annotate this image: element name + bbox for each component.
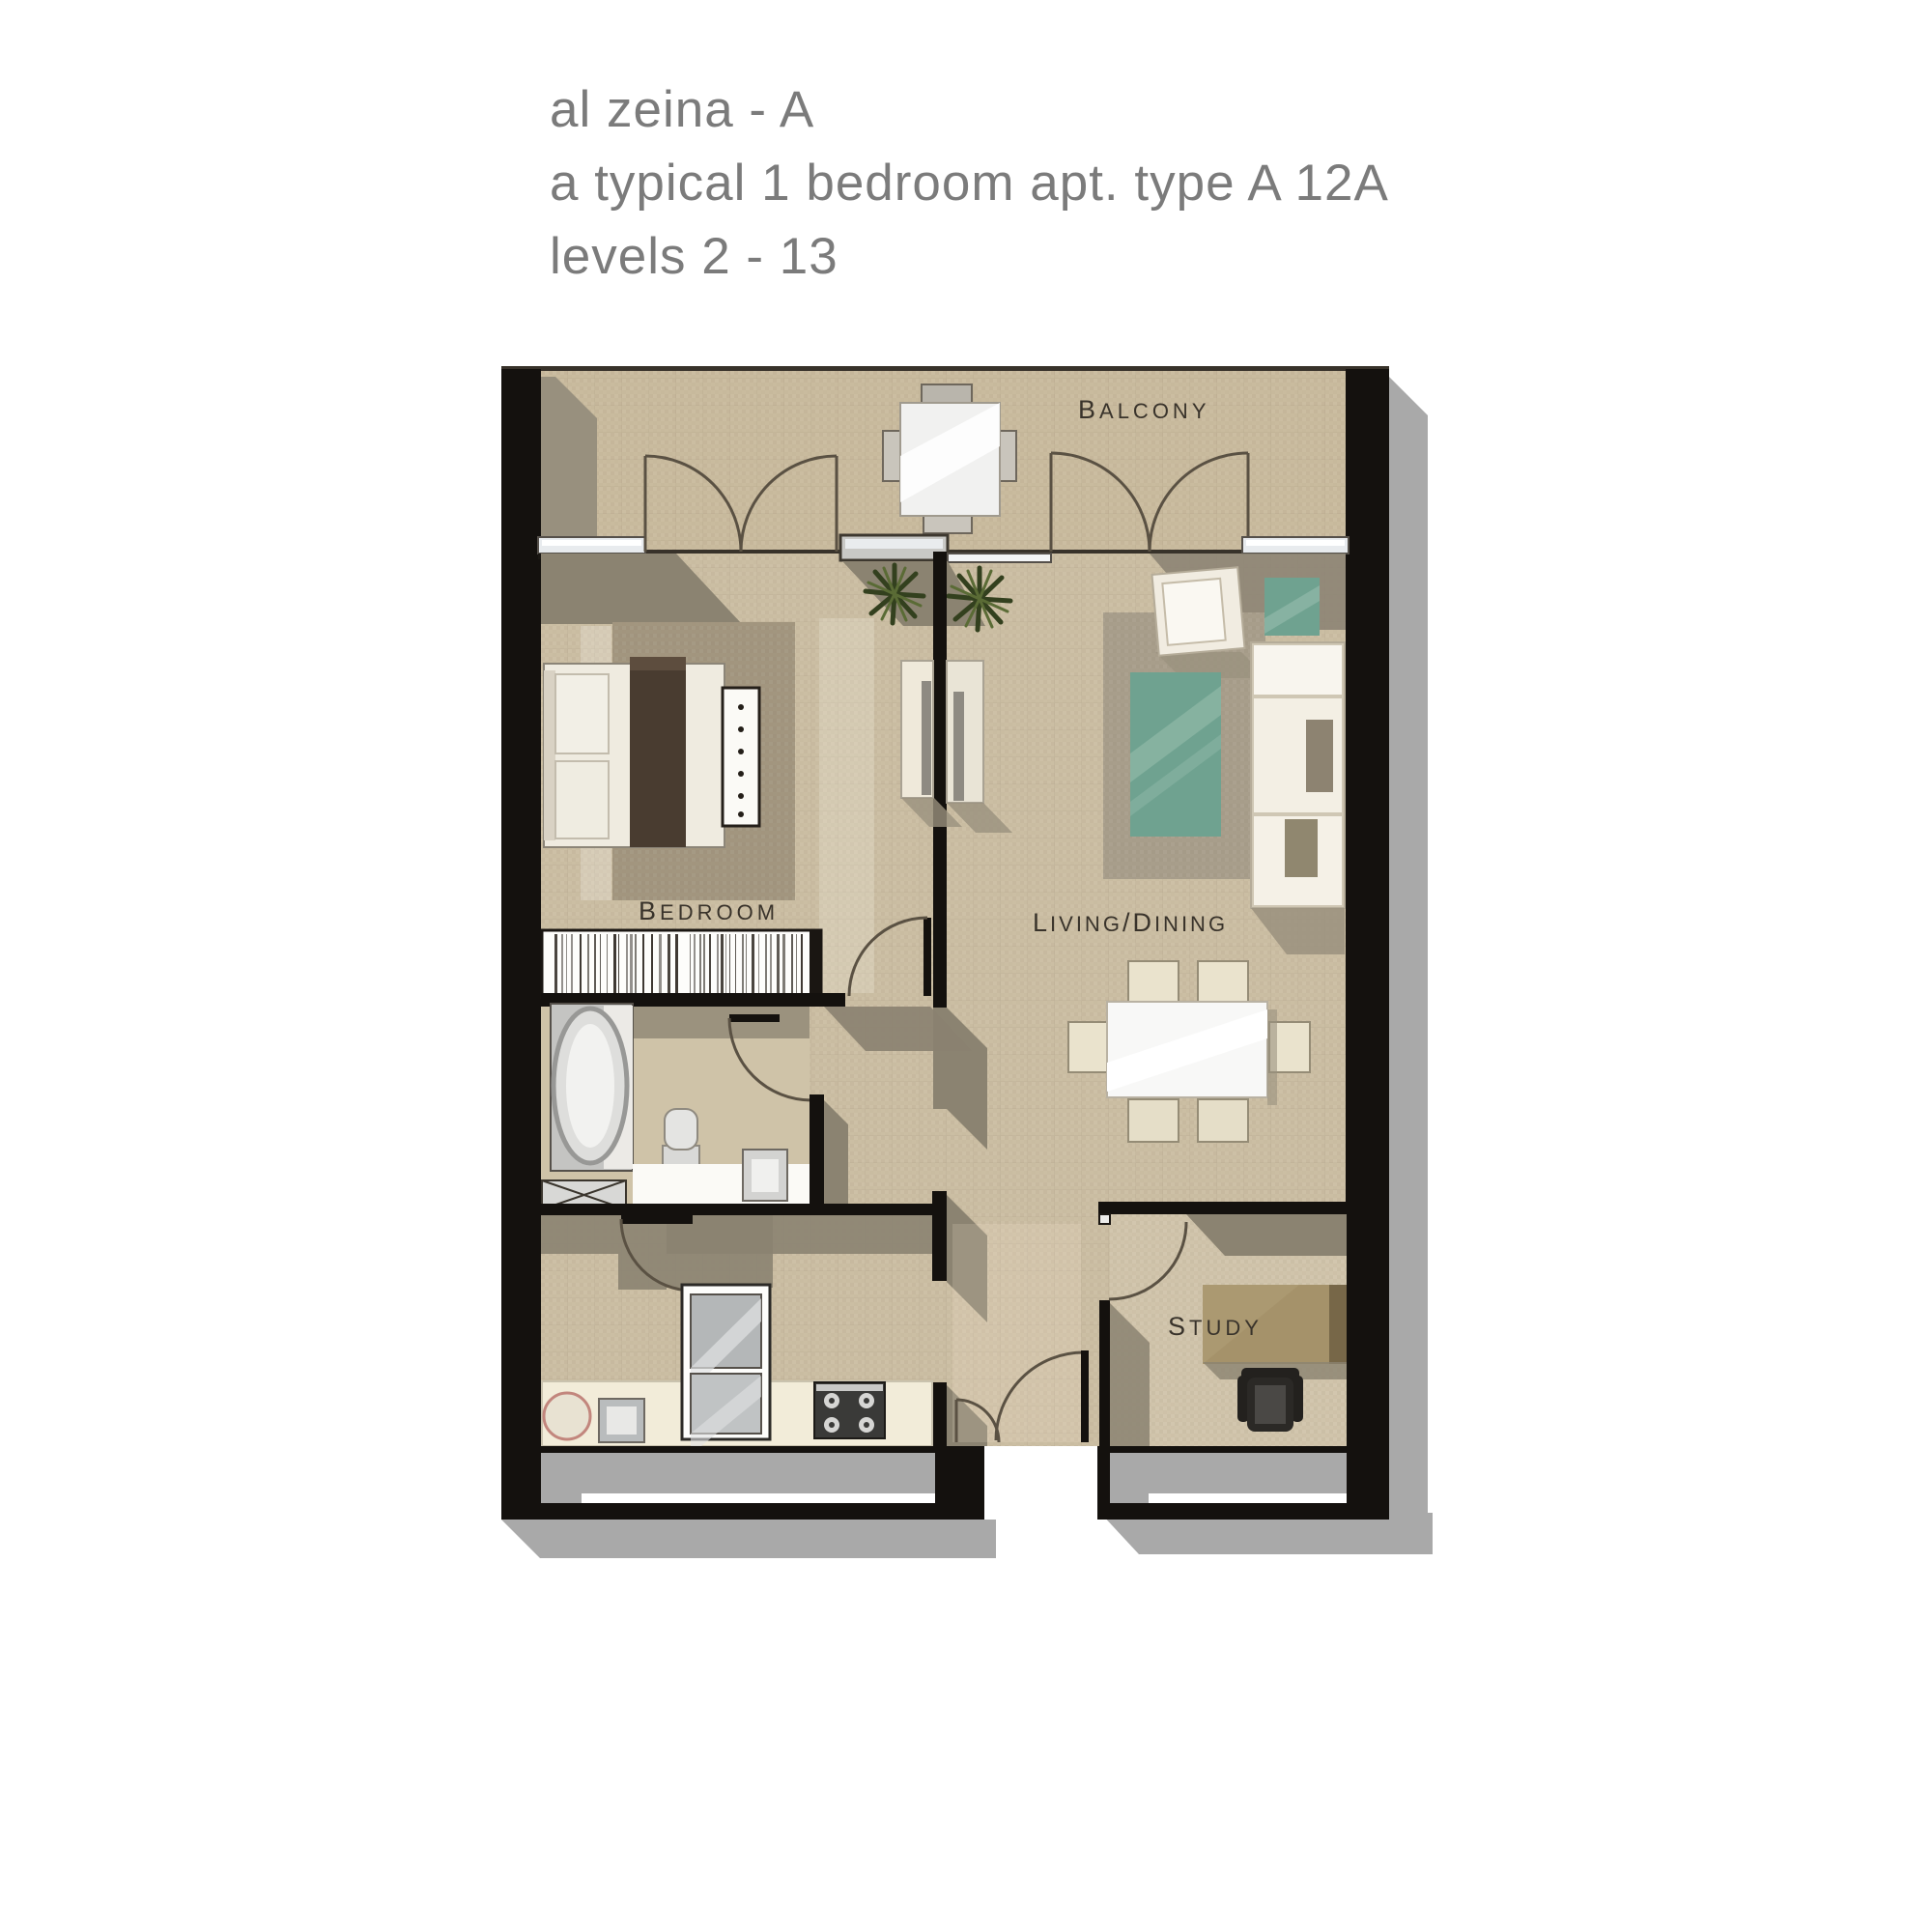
svg-text:LIVING/DINING: LIVING/DINING [1033, 908, 1228, 937]
svg-text:BALCONY: BALCONY [1078, 395, 1210, 424]
svg-text:BEDROOM: BEDROOM [639, 896, 779, 925]
svg-text:al zeina - A: al zeina - A [550, 81, 814, 138]
svg-text:STUDY: STUDY [1168, 1312, 1263, 1341]
svg-text:a typical 1 bedroom apt. type: a typical 1 bedroom apt. type A 12A [550, 155, 1389, 212]
svg-text:levels 2 - 13: levels 2 - 13 [550, 228, 838, 285]
